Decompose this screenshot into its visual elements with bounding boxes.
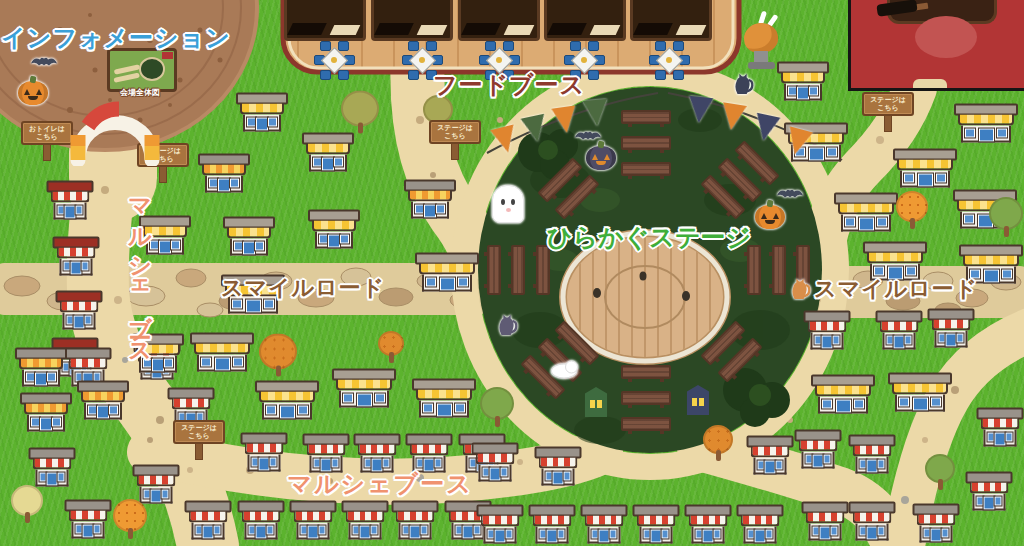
stall-window [415,205,424,214]
stall-window [860,527,867,536]
stall-door [931,529,942,542]
sign-post [43,144,51,161]
stall-door [547,530,558,543]
stall-body [197,355,247,372]
stall-body [399,523,432,540]
stall-awning [60,302,99,313]
stall-body [640,527,673,544]
chair [588,41,599,51]
bench [621,391,671,405]
stall-window [877,460,884,469]
roast-chicken-statue [740,11,784,73]
stall-door [894,336,905,349]
stall-body [895,395,945,412]
chair [485,41,496,51]
stall-body [542,469,575,486]
stall-awning [481,516,520,527]
bench [621,417,671,431]
stall-window [249,526,256,535]
stall-window [904,174,914,183]
stall-window [319,235,328,244]
stall-window [924,529,931,538]
stall-window [988,433,995,442]
stall-window [64,262,71,271]
stall-awning [346,512,385,523]
stall-awning [585,516,624,527]
stall-window [434,459,441,468]
stall-body [692,527,725,544]
detail-inset-panel [848,0,1024,91]
stall-door [913,398,928,411]
black-cat-icon [732,71,754,100]
jack-o-lantern-icon [18,81,48,105]
stall-awning [958,115,1014,126]
tree-crown [259,334,297,370]
market-stall [876,311,923,350]
bunting-flag [719,102,747,131]
stall-body [856,457,889,474]
stall-body [192,523,225,540]
stall-window [255,242,264,251]
stall-awning [24,404,68,415]
stall-body [809,524,842,541]
chair [655,41,666,51]
stall-window [252,458,259,467]
stall-awning [892,384,948,395]
stall-window [31,418,40,427]
stall-window [956,334,963,343]
inset-path-fragment [913,79,947,88]
market-stall [928,309,975,348]
stall-awning [194,344,250,355]
stall-window [997,129,1007,138]
sign-post [195,443,203,460]
stall-door [979,129,994,142]
stall-body [536,527,569,544]
stall-awning [781,73,825,84]
stall-window [88,406,97,415]
market-stall [77,381,129,420]
ghost-icon [492,185,524,223]
stall-body [315,232,353,249]
stall-door [859,218,874,231]
stall-window [931,398,941,407]
orange-cat-icon [789,276,811,305]
stall-awning [751,447,790,458]
stall-door [259,458,270,471]
stall-window [765,530,772,539]
stall-window [76,525,83,534]
stall-door [360,526,371,539]
stall-window [318,526,325,535]
stall-awning [189,512,228,523]
stall-window [143,359,152,368]
stall-awning [741,516,780,527]
market-stall [685,505,732,544]
stall-door [463,526,474,539]
marche-booth-left-label: マルシェブース [126,184,157,355]
stall-body [802,452,835,469]
market-stall [472,443,519,482]
stall-window [540,530,547,539]
stall-awning [33,459,72,470]
stall-body [856,524,889,541]
chair [338,70,349,80]
stall-body [784,84,822,101]
stall-window [941,529,948,538]
stall-door [218,179,231,192]
stall-body [479,465,512,482]
stage-label: ひらかぐステージ [547,221,751,254]
food-stall-booth [630,0,712,41]
stall-window [1005,433,1012,442]
stall-window [417,459,424,468]
stall-window [563,472,570,481]
stall-door [867,527,878,540]
stall-window [832,336,839,345]
marche-booth-bottom-label: マルシェブース [287,468,472,500]
chair [673,70,684,80]
stall-window [500,468,507,477]
stall-awning [69,511,108,522]
stall-body [297,523,330,540]
stall-window [40,473,47,482]
stall-window [144,490,151,499]
market-stall [804,311,851,350]
stall-awning [81,392,125,403]
stall-door [918,174,933,187]
stall-window [343,394,353,403]
stall-window [661,530,668,539]
market-stall [56,291,103,330]
tree-trunk [716,450,721,461]
sign-post [884,115,892,132]
stall-body [920,526,953,543]
stall-door [836,400,851,413]
stall-window [860,460,867,469]
stall-body [484,527,517,544]
tree-dotted [896,191,928,229]
sign-board: おトイレはこちら [21,121,73,145]
tree-dotted [113,499,147,539]
stall-awning [970,483,1009,494]
market-stall [20,393,72,432]
stall-window [806,455,813,464]
stall-awning [306,144,350,155]
market-stall [834,193,898,232]
tree-crown [341,91,379,127]
stall-window [161,490,168,499]
stall-awning [307,445,346,456]
stall-awning [476,454,515,465]
stall-window [334,158,343,167]
market-stall [290,501,337,540]
sign-board: ステージはこちら [173,420,225,444]
bench [487,245,501,295]
market-stall [47,181,94,220]
stall-door [410,526,421,539]
market-stall [29,448,76,487]
stall-awning [259,392,315,403]
stall-window [877,527,884,536]
bench [621,136,671,150]
stall-body [961,126,1011,143]
stall-awning [533,516,572,527]
stall-awning [917,515,956,526]
stall-door [984,270,999,283]
food-stall-booth [371,0,453,41]
stall-window [403,526,410,535]
stall-window [331,459,338,468]
table-centerpiece [419,57,425,63]
stall-window [426,278,436,287]
stall-window [269,458,276,467]
stall-awning [202,165,246,176]
stall-window [213,526,220,535]
stall-awning [897,160,953,171]
stall-door [280,406,295,419]
tree-trunk [1004,226,1009,237]
stall-window [887,336,894,345]
market-stall [747,436,794,475]
stall-door [65,206,76,219]
tree-green [989,197,1023,237]
stall-awning [963,256,1019,267]
stall-body [309,155,347,172]
stall-window [58,206,65,215]
stall-awning [172,399,211,410]
bench [621,162,671,176]
stall-door [599,530,610,543]
stall-window [233,358,243,367]
map-board-caption: 会場全体図 [120,87,160,98]
stall-window [609,530,616,539]
stall-awning [294,512,333,523]
market-stall [581,505,628,544]
stall-door [984,497,995,510]
market-stall [190,333,254,372]
stall-body [984,430,1017,447]
stall-body [818,397,868,414]
stall-awning [137,476,176,487]
stall-door [308,526,319,539]
stall-window [809,87,818,96]
market-stall [777,62,829,101]
stall-window [748,530,755,539]
stall-body [27,415,65,432]
tree-trunk [358,123,363,134]
jack-o-lantern-icon [755,205,785,229]
stall-awning [242,512,281,523]
market-stall [392,501,439,540]
market-stall [198,154,250,193]
stall-awning [867,253,923,264]
stall-body [422,275,472,292]
stall-awning [408,191,452,202]
stall-door [151,490,162,503]
purple-cat-icon [496,312,518,341]
market-stall [888,373,952,412]
stall-window [375,394,385,403]
stall-body [900,171,950,188]
stall-window [365,459,372,468]
stall-window [75,206,82,215]
market-stall [302,133,354,172]
tree-trunk [495,416,500,427]
stall-window [201,358,211,367]
stall-window [298,406,308,415]
market-stall [185,501,232,540]
inset-highlight-circle [915,16,977,58]
stall-window [266,406,276,415]
stall-door [490,468,501,481]
stall-door [553,472,564,485]
stall-window [423,404,433,413]
food-stall-booth [284,0,366,41]
stall-window [713,530,720,539]
stall-body [811,333,844,350]
market-stall [795,430,842,469]
table-centerpiece [496,57,502,63]
stall-window [230,179,239,188]
stall-awning [419,264,475,275]
stall-body [744,527,777,544]
market-stall [406,434,453,473]
stall-body [262,403,312,420]
smile-road-left-label: スマイルロード [221,273,385,303]
entrance-arch [68,88,162,166]
stall-window [644,530,651,539]
tree-green [480,387,514,427]
stall-window [483,468,490,477]
market-stall [404,180,456,219]
stall-door [424,205,437,218]
bench [621,365,671,379]
stall-window [827,148,837,157]
stall-door [71,262,82,275]
stall-window [813,527,820,536]
stall-awning [227,228,271,239]
stall-awning [880,322,919,333]
stall-door [35,373,48,386]
market-stall [354,434,401,473]
stall-body [973,494,1006,511]
stall-window [965,129,975,138]
stall-door [946,334,957,347]
stall-window [382,459,389,468]
chair [320,41,331,51]
stall-window [340,235,349,244]
stall-window [436,205,445,214]
stall-awning [358,445,397,456]
stall-window [939,334,946,343]
market-stall [133,465,180,504]
bench [621,110,671,124]
navy-lantern-icon [686,385,710,415]
stall-window [1002,270,1012,279]
stall-awning [57,248,96,259]
stall-window [109,406,118,415]
stall-door [243,242,256,255]
stall-door [97,406,110,419]
market-stall [977,408,1024,447]
chair [503,41,514,51]
stall-door [495,530,506,543]
stall-window [505,530,512,539]
tree-trunk [276,366,281,377]
stall-awning [932,320,971,331]
stall-body [63,313,96,330]
stall-door [152,359,165,372]
tree-trunk [389,352,394,363]
stall-awning [637,516,676,527]
stall-window [171,241,180,250]
stall-awning [336,380,392,391]
market-stall [802,502,849,541]
stall-window [313,158,322,167]
stall-door [256,526,267,539]
purple-jack-o-lantern-icon [586,146,616,170]
stall-body [754,458,787,475]
stall-body [36,470,69,487]
sign-post [451,143,459,160]
chair [408,70,419,80]
smile-road-right-label: スマイルロード [814,274,978,304]
market-stall [236,93,288,132]
stall-window [994,497,1001,506]
direction-sign: ステージはこちら [429,120,481,160]
stall-awning [981,419,1020,430]
sign-board: ステージはこちら [862,92,914,116]
market-stall [342,501,389,540]
stall-awning [799,441,838,452]
stall-door [797,87,810,100]
stall-window [456,526,463,535]
stall-awning [815,386,871,397]
market-stall [241,433,288,472]
stall-awning [19,359,63,370]
market-stall [535,447,582,486]
table-set [317,42,351,78]
stall-door [820,527,831,540]
bunting-flag [583,99,609,127]
stall-window [904,336,911,345]
venue-map-board [107,48,177,92]
stall-body [54,203,87,220]
stall-window [877,218,887,227]
bat-icon [776,187,804,206]
stall-window [845,218,855,227]
market-stall [303,434,350,473]
stall-window [370,526,377,535]
stall-window [822,400,832,409]
stall-body [205,176,243,193]
tree-trunk [128,528,133,539]
stall-window [775,461,782,470]
stall-door [40,418,53,431]
stall-awning [689,516,728,527]
stall-window [977,497,984,506]
stall-window [93,525,100,534]
stall-awning [853,513,892,524]
stall-awning [312,221,356,232]
stall-body [72,522,105,539]
stall-window [301,526,308,535]
stall-window [57,473,64,482]
stall-door [440,278,455,291]
stall-door [159,241,172,254]
stall-window [936,174,946,183]
